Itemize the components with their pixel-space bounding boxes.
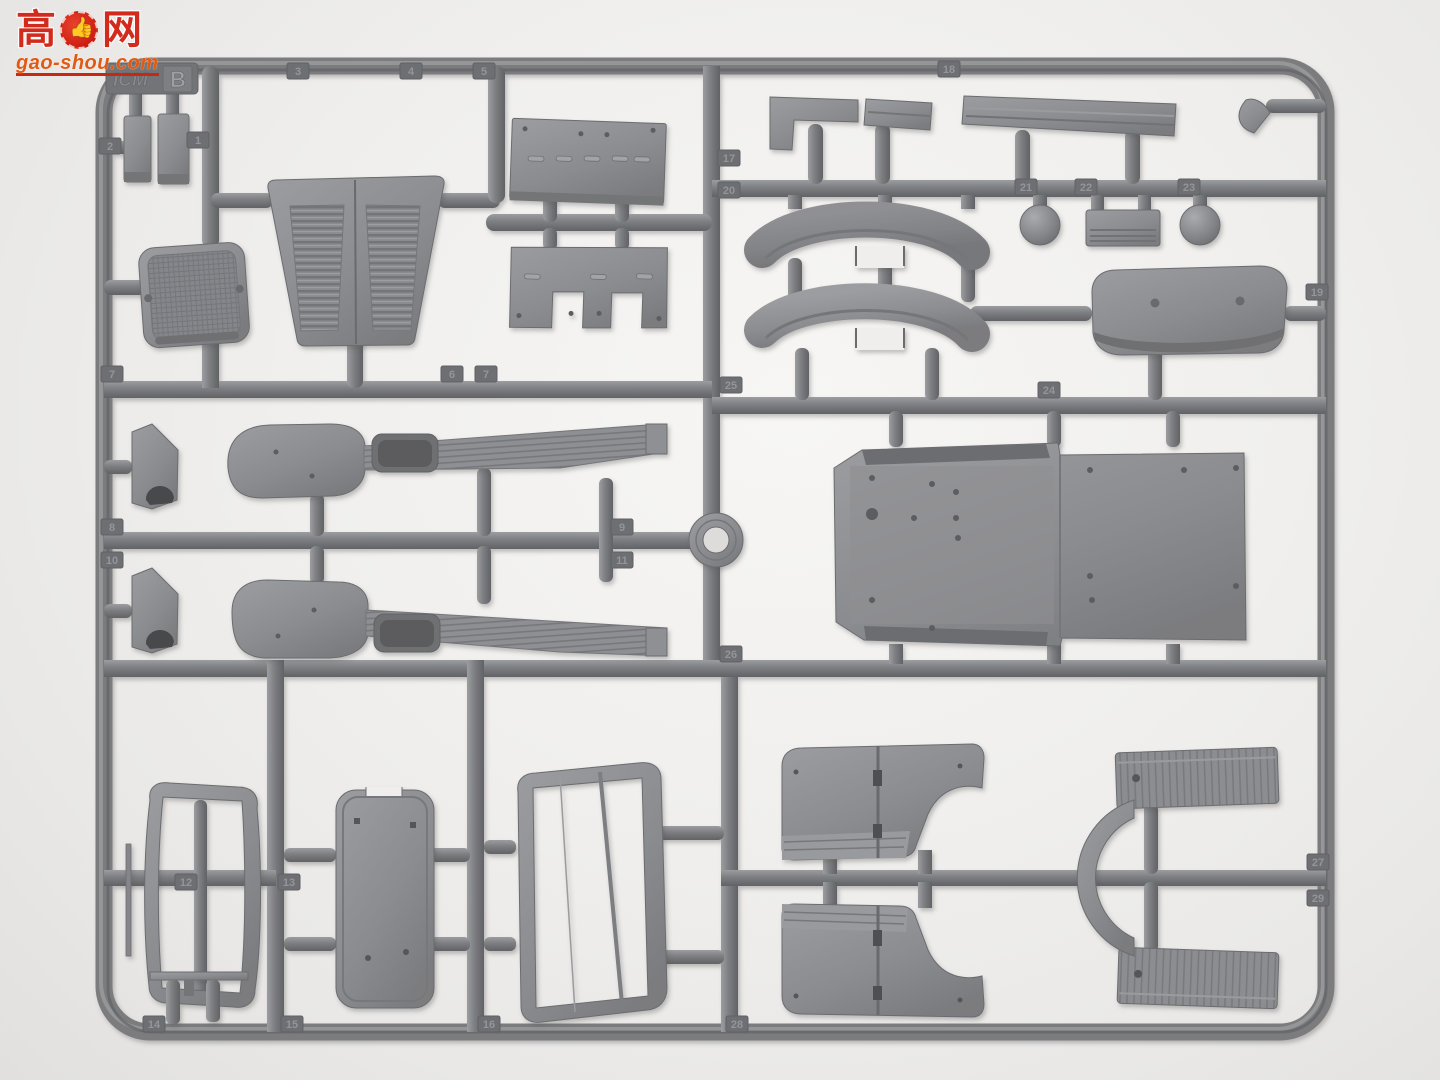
svg-text:1: 1 [195, 135, 201, 147]
svg-text:16: 16 [483, 1019, 495, 1031]
valance-panel-part [1092, 266, 1287, 355]
part-number-tab: 9 [611, 519, 633, 535]
svg-text:11: 11 [616, 555, 628, 567]
svg-text:15: 15 [286, 1019, 298, 1031]
svg-text:2: 2 [107, 141, 113, 153]
svg-text:7: 7 [109, 369, 115, 381]
photo-of-model-kit-sprue: 高 👍 网 gao-shou.com [0, 0, 1440, 1080]
svg-text:13: 13 [283, 877, 295, 889]
radiator-grille-part [138, 241, 251, 348]
chassis-floor-part [834, 443, 1246, 646]
part-number-tab: 19 [1306, 284, 1328, 300]
ball-part-b [1180, 205, 1220, 245]
part-number-tab: 18 [938, 61, 960, 77]
svg-text:6: 6 [449, 369, 455, 381]
ball-part-a [1020, 205, 1060, 245]
part-number-tab: 3 [287, 63, 309, 79]
part-number-tab: 13 [278, 874, 300, 890]
svg-text:22: 22 [1080, 182, 1092, 194]
part-number-tab: 15 [281, 1016, 303, 1032]
part-number-tab: 4 [400, 63, 422, 79]
svg-text:5: 5 [481, 66, 487, 78]
hood-louvered-part [268, 176, 444, 346]
svg-text:7: 7 [483, 369, 489, 381]
svg-text:10: 10 [106, 555, 118, 567]
svg-text:23: 23 [1183, 182, 1195, 194]
svg-text:26: 26 [725, 649, 737, 661]
part-number-tab: 27 [1307, 854, 1329, 870]
watermark-char-right: 网 [102, 10, 142, 50]
svg-text:29: 29 [1312, 893, 1324, 905]
svg-text:25: 25 [725, 380, 737, 392]
floor-panel-b-part [509, 242, 670, 332]
part-number-tab: 8 [101, 519, 123, 535]
part-number-tab: 7 [475, 366, 497, 382]
bracket-part-a [132, 424, 178, 509]
part-number-tab: 23 [1178, 179, 1200, 195]
mudguard-part-a [782, 744, 984, 860]
sprue-photo-drawing: ICM B 2134518172021222319767252481091126… [0, 0, 1440, 1080]
svg-text:17: 17 [723, 153, 735, 165]
svg-text:28: 28 [731, 1019, 743, 1031]
part-number-tab: 14 [143, 1016, 165, 1032]
thin-strip-part [126, 844, 131, 956]
fender-right-part [232, 580, 667, 658]
part-number-tab: 28 [726, 1016, 748, 1032]
windscreen-frame-b-part [518, 763, 667, 1023]
ring-part [689, 513, 743, 567]
part-number-tab: 26 [720, 646, 742, 662]
part-number-tab: 1 [187, 132, 209, 148]
watermark-domain: gao-shou.com [16, 53, 159, 76]
part-number-tab: 6 [441, 366, 463, 382]
part-number-tab: 25 [720, 377, 742, 393]
sprue-letter: B [170, 67, 186, 92]
part-number-tab: 22 [1075, 179, 1097, 195]
part-number-tab: 7 [101, 366, 123, 382]
svg-text:4: 4 [408, 66, 415, 78]
mudguard-part-b [782, 904, 984, 1017]
ribbed-block-part [1086, 210, 1160, 246]
part-number-tab: 12 [175, 874, 197, 890]
small-plate-part [124, 114, 189, 184]
part-number-tab: 24 [1038, 382, 1060, 398]
part-number-tab: 5 [473, 63, 495, 79]
svg-text:20: 20 [723, 185, 735, 197]
svg-text:27: 27 [1312, 857, 1324, 869]
watermark: 高 👍 网 gao-shou.com [16, 10, 159, 76]
thumbs-up-badge-icon: 👍 [60, 11, 98, 49]
svg-text:24: 24 [1043, 385, 1056, 397]
running-board-b-part [962, 96, 1176, 136]
svg-text:14: 14 [148, 1019, 161, 1031]
part-number-tab: 10 [101, 552, 123, 568]
bracket-part-b [132, 568, 178, 653]
part-number-tab: 17 [718, 150, 740, 166]
svg-text:8: 8 [109, 522, 115, 534]
svg-text:21: 21 [1020, 182, 1032, 194]
watermark-char-left: 高 [16, 10, 56, 50]
part-number-tab: 11 [611, 552, 633, 568]
part-number-tab: 2 [99, 138, 121, 154]
svg-text:19: 19 [1311, 287, 1323, 299]
svg-text:9: 9 [619, 522, 625, 534]
rear-bumper-part [762, 301, 972, 350]
part-number-tab: 16 [478, 1016, 500, 1032]
seat-backrest-part [336, 787, 434, 1008]
running-board-a-part [770, 97, 932, 150]
svg-text:12: 12 [180, 877, 192, 889]
part-number-tab: 20 [718, 182, 740, 198]
floor-panel-a-part [510, 118, 667, 205]
part-number-tab: 29 [1307, 890, 1329, 906]
svg-text:3: 3 [295, 66, 301, 78]
svg-text:18: 18 [943, 64, 955, 76]
part-number-tab: 21 [1015, 179, 1037, 195]
wedge-part [1239, 99, 1270, 133]
